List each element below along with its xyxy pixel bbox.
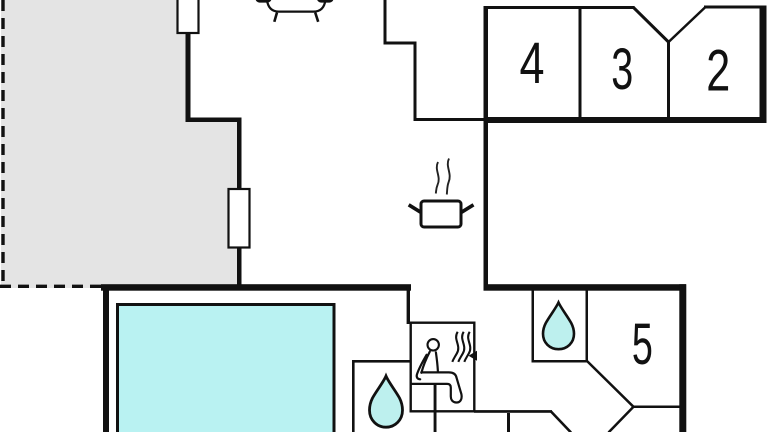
svg-text:2: 2: [706, 39, 730, 104]
svg-text:5: 5: [632, 312, 653, 377]
svg-text:4: 4: [520, 31, 545, 96]
svg-text:3: 3: [611, 37, 633, 102]
